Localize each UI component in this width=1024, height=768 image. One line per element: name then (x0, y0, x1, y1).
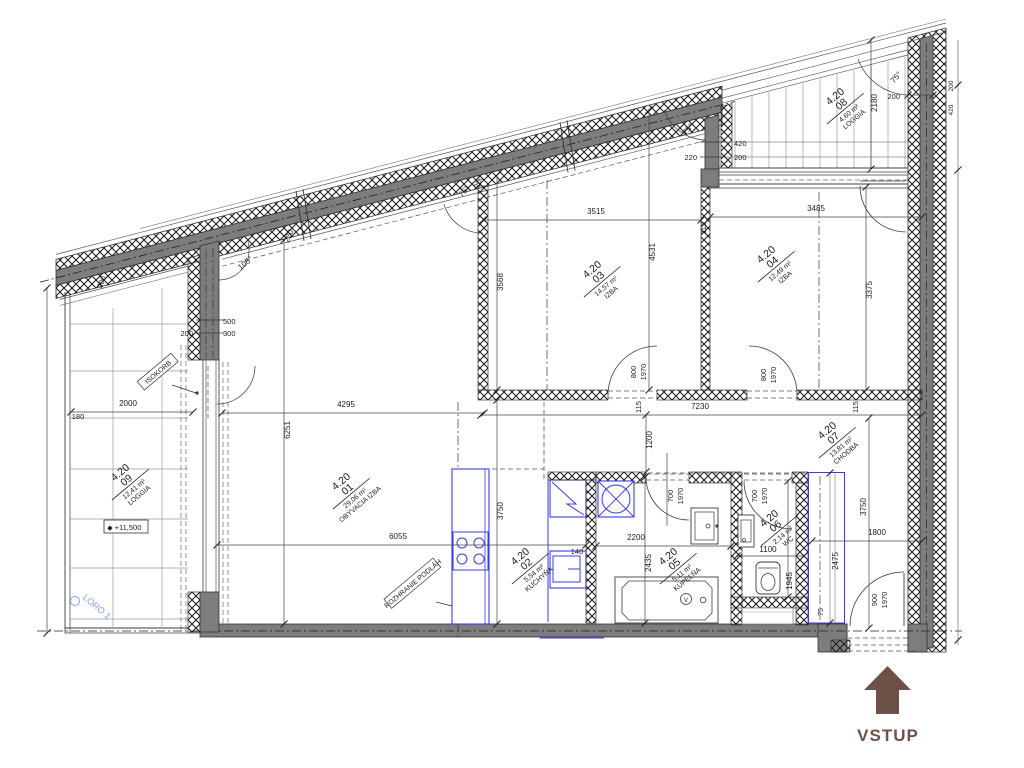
svg-text:6055: 6055 (389, 532, 407, 541)
svg-text:700: 700 (750, 490, 759, 503)
svg-text:+11,500: +11,500 (115, 523, 142, 532)
svg-text:800: 800 (759, 369, 768, 382)
svg-text:3485: 3485 (807, 204, 825, 213)
svg-text:2000: 2000 (119, 399, 137, 408)
svg-text:1970: 1970 (676, 488, 685, 505)
svg-text:700: 700 (666, 490, 675, 503)
svg-text:220: 220 (684, 153, 697, 162)
svg-text:2180: 2180 (870, 94, 879, 112)
svg-text:1970: 1970 (880, 592, 889, 609)
svg-text:V: V (684, 598, 688, 604)
svg-text:7230: 7230 (691, 402, 709, 411)
svg-text:1800: 1800 (868, 528, 886, 537)
svg-text:1100: 1100 (759, 545, 777, 554)
svg-text:420: 420 (948, 104, 955, 115)
svg-text:4295: 4295 (337, 400, 355, 409)
svg-text:1945: 1945 (785, 572, 794, 590)
svg-text:2475: 2475 (831, 552, 840, 570)
svg-text:1970: 1970 (639, 364, 648, 381)
svg-text:900: 900 (870, 594, 879, 607)
svg-text:140: 140 (571, 547, 584, 556)
svg-text:6251: 6251 (283, 421, 292, 439)
svg-text:VSTUP: VSTUP (857, 726, 919, 745)
svg-text:1200: 1200 (645, 431, 654, 449)
svg-text:200: 200 (180, 329, 193, 338)
svg-text:3750: 3750 (859, 498, 868, 516)
svg-text:3515: 3515 (587, 207, 605, 216)
svg-text:3375: 3375 (865, 281, 874, 299)
svg-text:180: 180 (72, 412, 85, 421)
svg-text:115: 115 (699, 222, 708, 234)
svg-text:3750: 3750 (496, 502, 505, 520)
svg-text:75: 75 (818, 608, 825, 616)
svg-text:3568: 3568 (496, 273, 505, 291)
svg-text:500: 500 (223, 317, 236, 326)
svg-text:◆: ◆ (107, 525, 113, 532)
svg-text:800: 800 (629, 366, 638, 379)
svg-text:115: 115 (851, 401, 860, 413)
svg-text:1970: 1970 (769, 367, 778, 384)
svg-text:115: 115 (634, 401, 643, 413)
svg-text:200: 200 (887, 92, 900, 101)
svg-text:420: 420 (734, 139, 747, 148)
svg-text:2435: 2435 (644, 554, 653, 572)
svg-text:4531: 4531 (648, 243, 657, 261)
svg-text:1970: 1970 (760, 488, 769, 505)
svg-text:200: 200 (948, 80, 955, 91)
svg-text:200: 200 (734, 153, 747, 162)
svg-text:300: 300 (223, 329, 236, 338)
svg-text:2200: 2200 (627, 533, 645, 542)
